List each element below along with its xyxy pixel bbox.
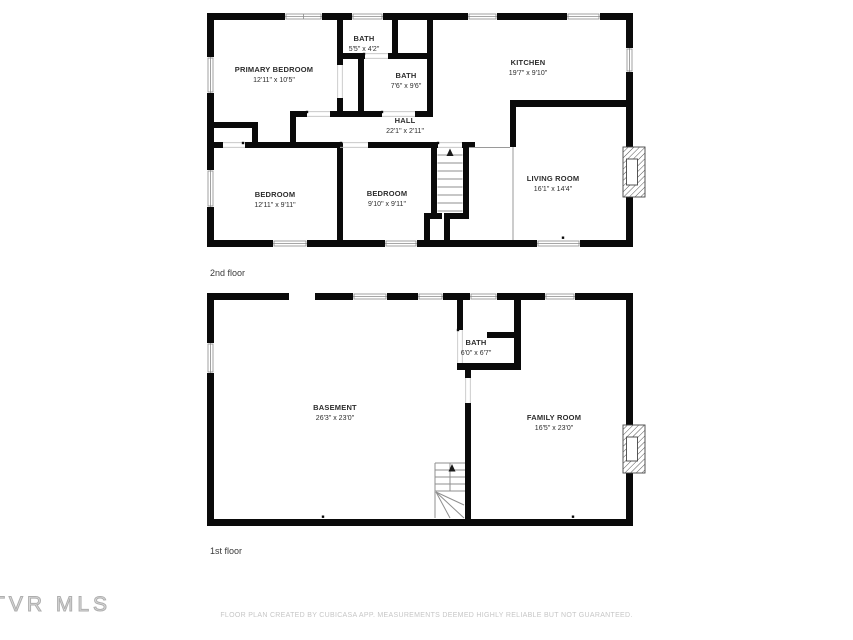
room-label-bedroom-middle: BEDROOM 9'10" x 9'11" [367,189,408,210]
fireplace-icon-floor2 [623,147,645,197]
room-label-bath-1st: BATH 6'0" x 6'7" [461,338,492,359]
floor-tag-2nd: 2nd floor [210,268,245,278]
floor-tag-1st: 1st floor [210,546,242,556]
stairs-icon-floor2 [438,149,463,212]
room-label-basement: BASEMENT 26'3" x 23'0" [313,403,357,424]
room-label-hall: HALL 22'1" x 2'11" [386,116,424,137]
room-label-living-room: LIVING ROOM 16'1" x 14'4" [527,174,580,195]
floor2-thin-boundaries [469,147,513,240]
room-label-bath-small: BATH 5'5" x 4'2" [349,34,380,55]
floor2-plan [207,13,645,247]
room-label-bath-2nd: BATH 7'6" x 9'6" [391,71,422,92]
floor1-walls [207,293,633,526]
floor-plan-page: PRIMARY BEDROOM 12'11" x 10'5" BATH 5'5"… [0,0,853,640]
room-label-kitchen: KITCHEN 19'7" x 9'10" [509,58,547,79]
room-label-bedroom-left: BEDROOM 12'11" x 9'11" [254,190,295,211]
floor1-plan [207,293,645,526]
fireplace-icon-floor1 [623,425,645,473]
room-label-primary-bedroom: PRIMARY BEDROOM 12'11" x 10'5" [235,65,313,86]
floor-plan-drawing [0,0,853,640]
disclaimer-text: FLOOR PLAN CREATED BY CUBICASA APP. MEAS… [0,612,853,619]
room-label-family-room: FAMILY ROOM 16'5" x 23'0" [527,413,581,434]
stairs-icon-floor1 [435,463,465,518]
floor1-openings [289,294,470,403]
